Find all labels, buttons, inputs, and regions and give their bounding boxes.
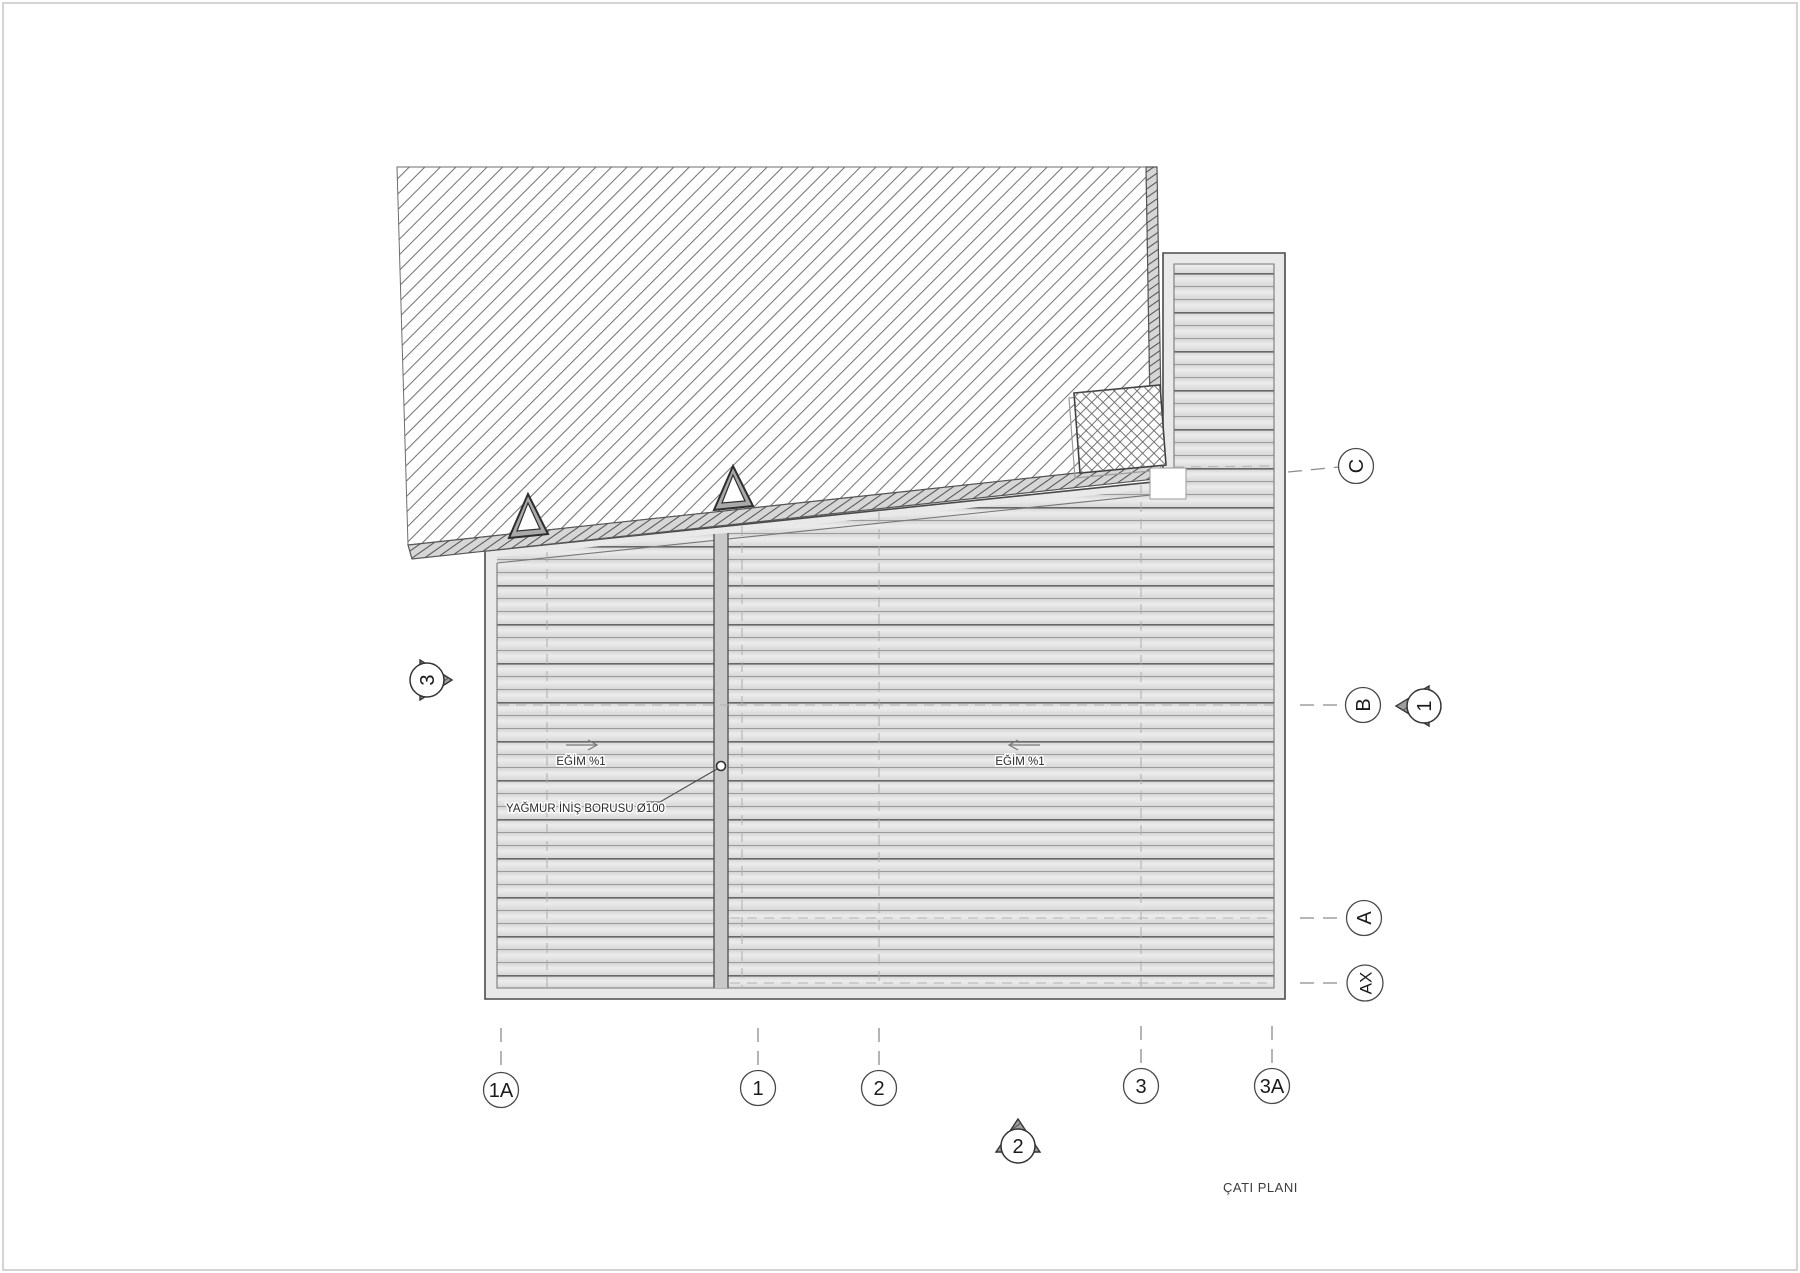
grid-bubble-A: A	[1347, 901, 1382, 936]
grid-bubble-AX: AX	[1347, 965, 1383, 1001]
section-marker-2-label: 2	[1012, 1136, 1023, 1158]
downpipe-label: YAĞMUR İNİŞ BORUSU Ø100	[506, 802, 665, 815]
grid-axes-right: C B A AX	[1288, 449, 1383, 1002]
grid-bubble-AX-label: AX	[1357, 972, 1376, 995]
grid-bubble-1-label: 1	[752, 1078, 763, 1100]
grid-bubble-C: C	[1339, 449, 1374, 484]
section-marker-1-right: 1	[1396, 686, 1441, 726]
section-marker-3-label: 3	[417, 674, 439, 685]
grid-dashes-right	[1288, 467, 1346, 983]
drawing-sheet: EĞİM %1 EĞİM %1 YAĞMUR İNİŞ BORUSU Ø100 …	[0, 0, 1800, 1273]
section-marker-2-bottom: 2	[996, 1119, 1040, 1163]
grid-bubble-A-label: A	[1354, 911, 1376, 925]
grid-bubble-2: 2	[862, 1071, 897, 1106]
grid-bubble-3-label: 3	[1135, 1076, 1146, 1098]
grid-bubble-3: 3	[1124, 1069, 1159, 1104]
slope-label-right: EĞİM %1	[995, 755, 1044, 768]
panel-divider-gutter	[714, 533, 728, 988]
grid-dashes-bottom	[501, 1026, 1272, 1065]
grid-bubble-3A-label: 3A	[1260, 1076, 1285, 1098]
grid-bubble-C-label: C	[1346, 459, 1368, 473]
grid-bubble-2-label: 2	[873, 1078, 884, 1100]
grid-bubble-1: 1	[741, 1071, 776, 1106]
chimney-notch	[1150, 468, 1186, 499]
section-marker-3-left: 3	[410, 660, 452, 700]
grid-axes-bottom: 1A 1 2 3 3A	[484, 1026, 1290, 1108]
grid-bubble-B: B	[1346, 688, 1381, 723]
grid-bubble-B-label: B	[1353, 698, 1375, 711]
slope-label-left: EĞİM %1	[556, 755, 605, 768]
drawing-title: ÇATI PLANI	[1223, 1180, 1298, 1195]
downpipe-circle-icon	[717, 762, 726, 771]
grid-bubble-1A-label: 1A	[489, 1080, 514, 1102]
grid-bubble-3A: 3A	[1255, 1069, 1290, 1104]
roof-plan-canvas: EĞİM %1 EĞİM %1 YAĞMUR İNİŞ BORUSU Ø100 …	[0, 0, 1800, 1273]
section-marker-1-label: 1	[1414, 700, 1436, 711]
grid-bubble-1A: 1A	[484, 1073, 519, 1108]
